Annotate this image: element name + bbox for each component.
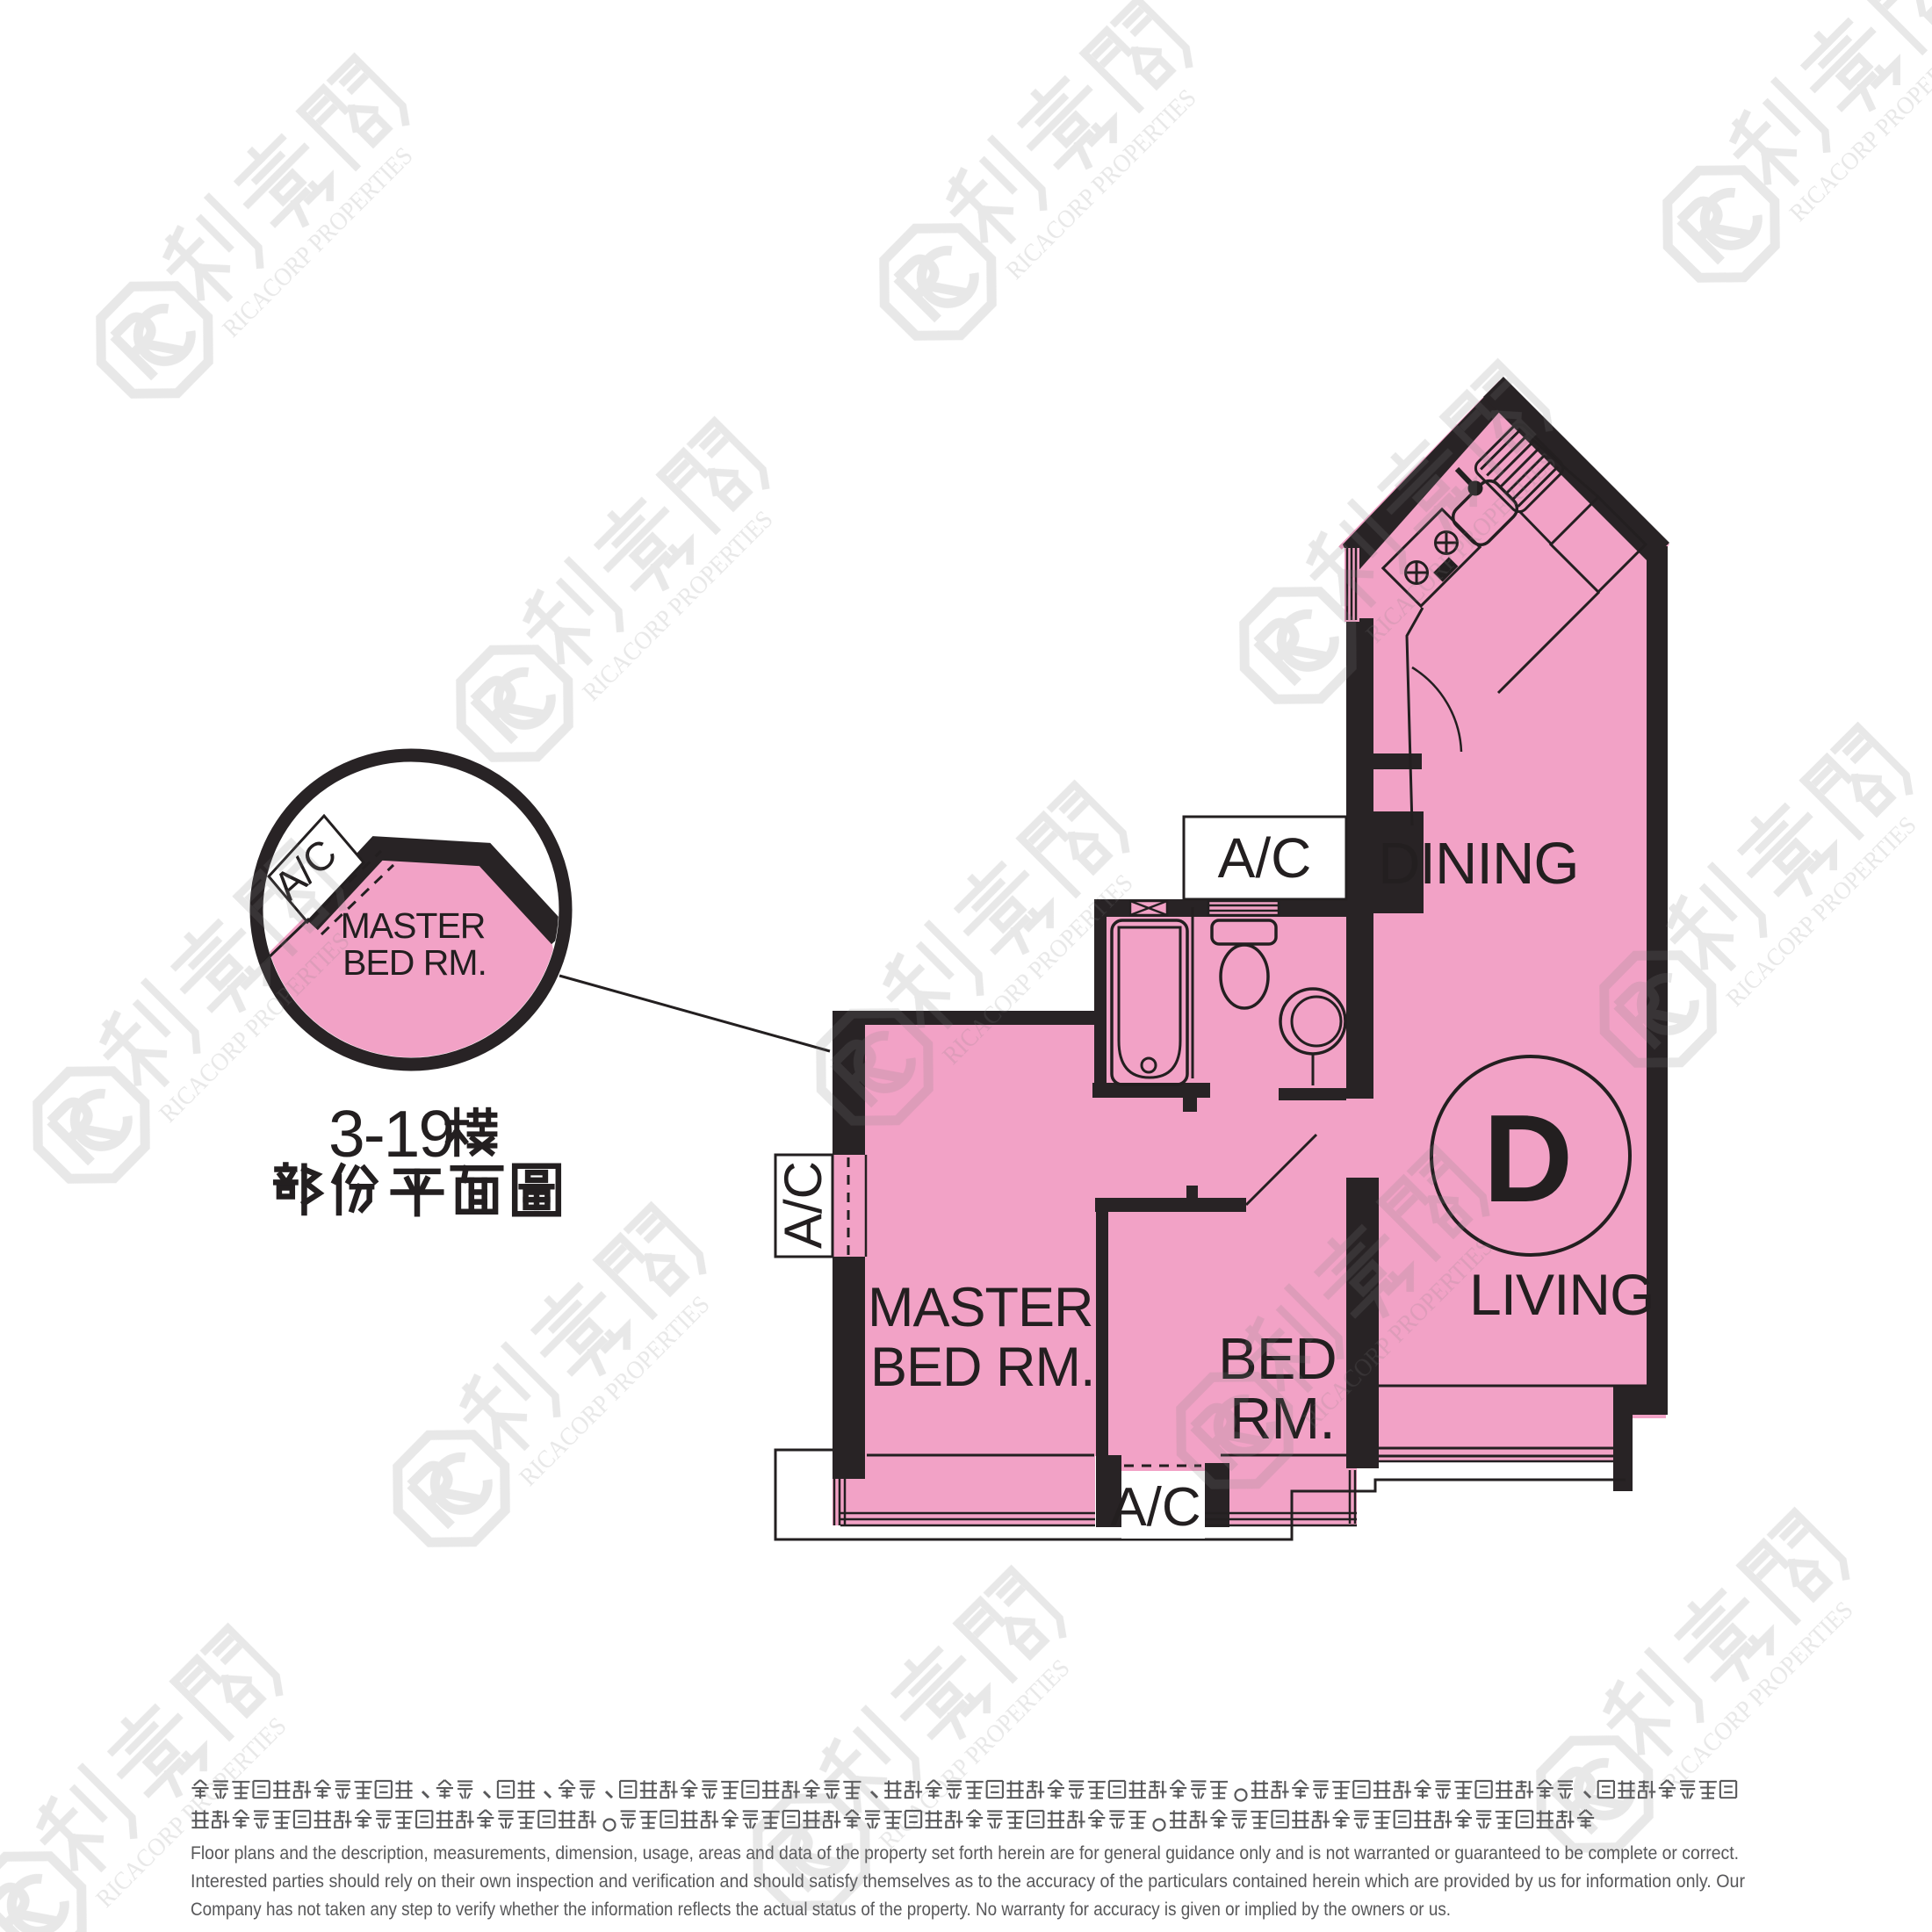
svg-text:Interested parties should rely: Interested parties should rely on their …: [191, 1871, 1745, 1892]
svg-text:D: D: [1483, 1089, 1574, 1229]
svg-text:Floor plans and the descriptio: Floor plans and the description, measure…: [191, 1842, 1739, 1864]
svg-text:A/C: A/C: [1110, 1477, 1200, 1538]
svg-text:MASTER: MASTER: [341, 905, 486, 946]
svg-text:3-19: 3-19: [328, 1097, 453, 1171]
svg-text:BED RM.: BED RM.: [870, 1337, 1095, 1398]
svg-text:MASTER: MASTER: [868, 1277, 1093, 1338]
svg-text:BED RM.: BED RM.: [342, 942, 487, 983]
svg-text:DINING: DINING: [1378, 831, 1579, 897]
svg-text:LIVING: LIVING: [1469, 1262, 1654, 1327]
svg-text:A/C: A/C: [774, 1161, 833, 1249]
svg-text:A/C: A/C: [1218, 826, 1312, 890]
